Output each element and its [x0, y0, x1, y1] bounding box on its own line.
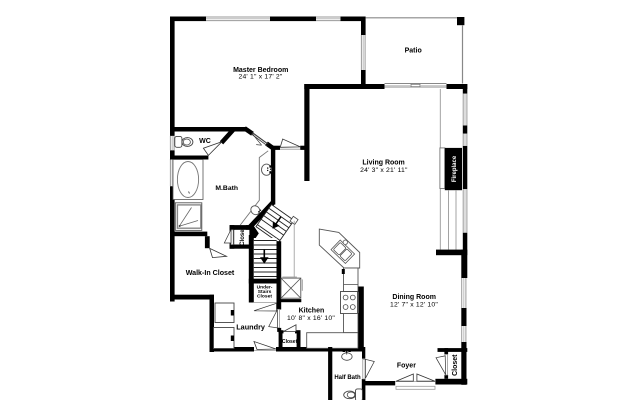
svg-text:Foyer: Foyer	[397, 363, 416, 370]
svg-text:M.Bath: M.Bath	[215, 185, 238, 192]
svg-text:24' 1" x 17' 2": 24' 1" x 17' 2"	[238, 73, 282, 80]
svg-text:Closet: Closet	[282, 339, 298, 345]
svg-text:Closet: Closet	[257, 294, 272, 300]
svg-text:Living Room: Living Room	[362, 160, 404, 167]
svg-text:Walk-In Closet: Walk-In Closet	[186, 269, 235, 277]
svg-text:Half Bath: Half Bath	[334, 375, 361, 381]
svg-text:Laundry: Laundry	[236, 322, 266, 331]
svg-text:Closet: Closet	[452, 354, 459, 376]
svg-text:10' 8" x 16' 10": 10' 8" x 16' 10"	[287, 315, 335, 322]
svg-text:Closet: Closet	[240, 227, 246, 245]
svg-text:Patio: Patio	[405, 48, 422, 55]
svg-text:24' 3" x 21' 11": 24' 3" x 21' 11"	[360, 167, 408, 174]
svg-text:Dining Room: Dining Room	[392, 294, 436, 301]
svg-text:Kitchen: Kitchen	[299, 307, 325, 314]
svg-text:12' 7" x 12' 10": 12' 7" x 12' 10"	[390, 302, 438, 309]
svg-text:Fireplace: Fireplace	[452, 155, 458, 182]
svg-text:WC: WC	[199, 138, 211, 145]
